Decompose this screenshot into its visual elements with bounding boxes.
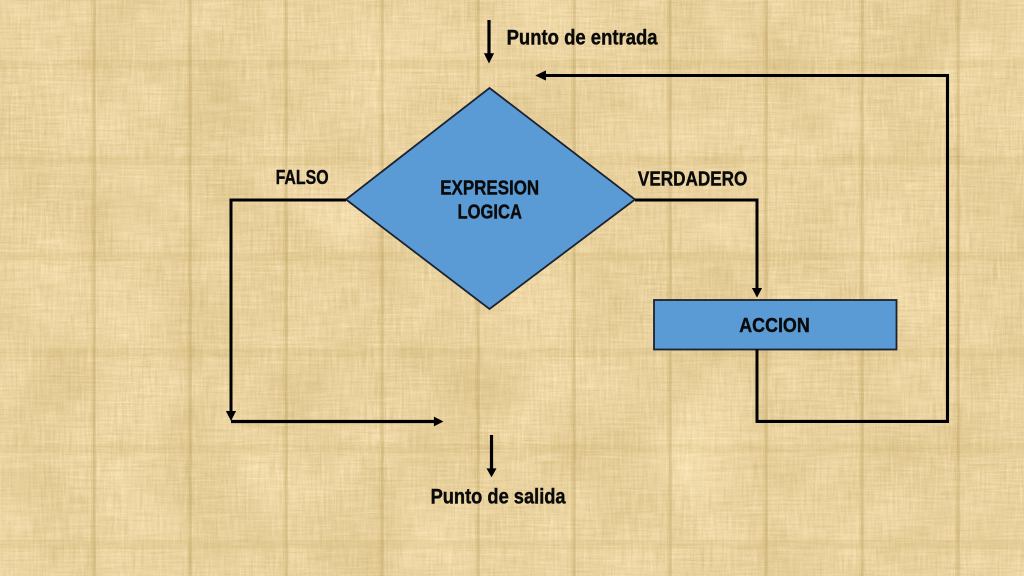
svg-text:ACCION: ACCION [739,315,810,337]
svg-text:LOGICA: LOGICA [457,200,522,223]
svg-text:EXPRESION: EXPRESION [440,176,539,199]
svg-text:Punto de entrada: Punto de entrada [507,26,658,49]
svg-text:VERDADERO: VERDADERO [638,168,748,190]
svg-text:Punto de salida: Punto de salida [431,485,566,508]
svg-text:FALSO: FALSO [276,166,329,189]
